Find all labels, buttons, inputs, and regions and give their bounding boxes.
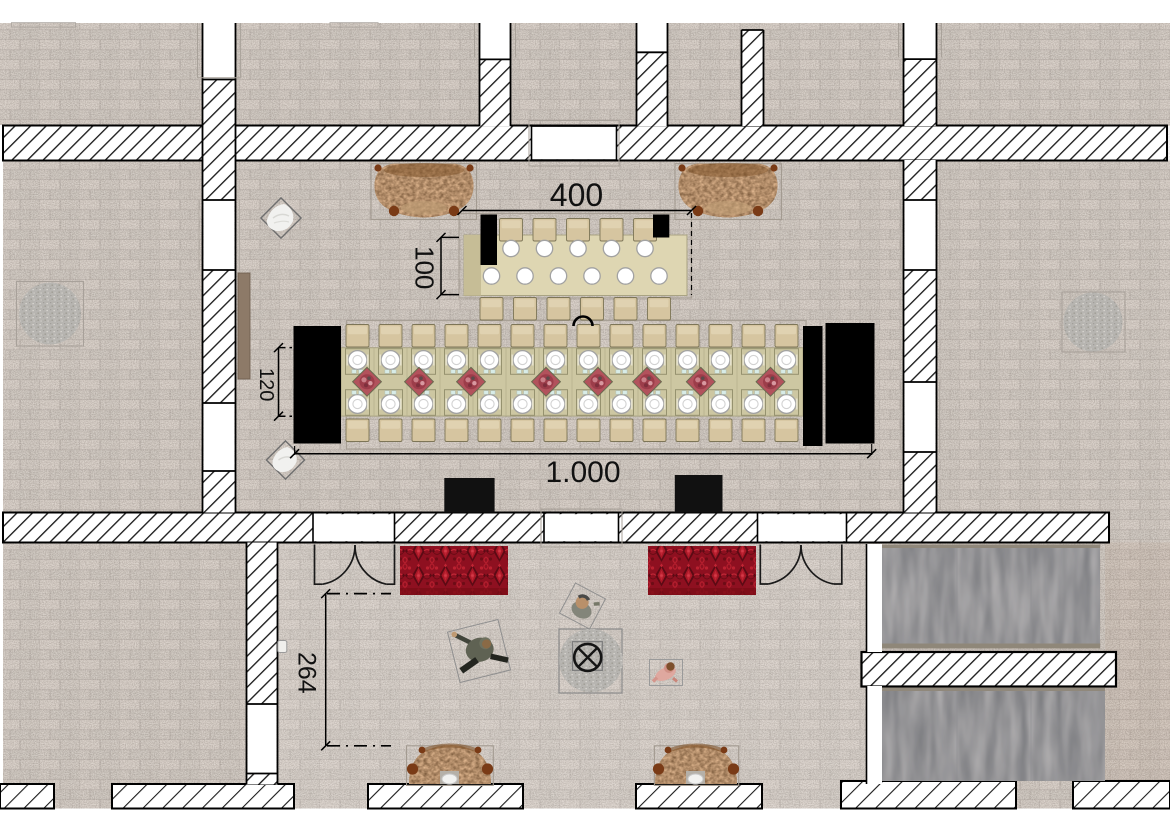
svg-text:100: 100 (410, 246, 440, 289)
svg-text:1.000: 1.000 (545, 456, 620, 489)
svg-text:400: 400 (550, 177, 603, 213)
svg-text:264: 264 (293, 652, 321, 694)
svg-text:120: 120 (255, 368, 277, 401)
